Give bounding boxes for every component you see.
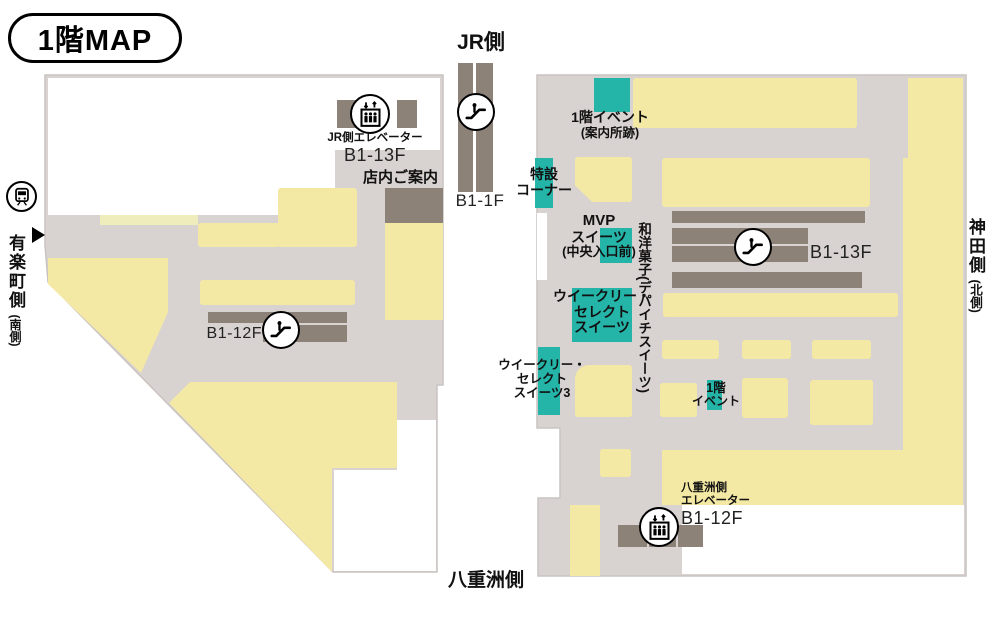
weekly-line1: ウイークリー・	[552, 289, 652, 305]
weekly-select-3-label: ウイークリー・ セレクト スイーツ3	[492, 358, 592, 400]
jr-elevator-floors: B1-13F	[325, 145, 425, 165]
event-1f-top-line1: 1階イベント	[550, 110, 670, 126]
jr-elevator-label: JR側エレベーター	[325, 132, 425, 145]
weekly3-line2: セレクト	[492, 372, 592, 386]
sales-area-block	[570, 505, 600, 576]
weekly-line3: スイーツ	[552, 320, 652, 336]
escalator-icon	[734, 228, 772, 266]
side-label-yurakucho: 有楽町側 (南側)	[6, 234, 25, 394]
sales-area-block	[385, 223, 443, 320]
sales-area-block	[663, 293, 898, 317]
event-spot-1f-top	[594, 78, 630, 112]
sales-area-block	[200, 280, 355, 305]
special-corner-line1: 特設	[504, 167, 584, 183]
escalator-icon	[457, 93, 495, 131]
elevator-icon	[639, 507, 679, 547]
escalator-floors-label: B1-12F	[182, 325, 262, 343]
event-1f-small-label: 1階 イベント	[686, 381, 746, 408]
right-escalator-floors: B1-13F	[810, 242, 872, 262]
sales-area-block	[278, 188, 357, 247]
escalator-icon	[262, 311, 300, 349]
kanda-main: 神田側	[966, 218, 985, 275]
escalator-bank	[672, 272, 862, 288]
yurakucho-main: 有楽町側	[6, 234, 25, 310]
yaesu-elevator-line1: 八重洲側	[681, 482, 750, 495]
elevator-shaft	[397, 100, 417, 128]
map-title-badge: 1階MAP	[8, 13, 182, 63]
floor-map-1f: B1-12F JR側エレベーター B1-13F 店内ご案内 B1-1F JR側 …	[0, 0, 1000, 630]
escalator-bank	[672, 211, 865, 223]
weekly3-line1: ウイークリー・	[492, 358, 592, 372]
kanda-sub: (北側)	[968, 279, 982, 312]
yaesu-elevator-label: 八重洲側 エレベーター B1-12F	[681, 482, 750, 528]
special-corner-label: 特設 コーナー	[504, 167, 584, 198]
weekly-line2: セレクト	[552, 305, 652, 321]
yaesu-elevator-line2: エレベーター	[681, 495, 750, 508]
event-1f-small-line1: 1階	[686, 381, 746, 395]
side-label-jr: JR側	[426, 31, 536, 55]
sales-area-strip	[100, 215, 198, 225]
sales-area-block	[198, 223, 280, 247]
event-1f-small-line2: イベント	[686, 395, 746, 408]
side-label-kanda: 神田側 (北側)	[966, 218, 985, 358]
mvp-line1: MVP	[549, 213, 649, 230]
sales-area-block	[742, 340, 791, 359]
entrance-arrow	[32, 227, 45, 243]
right-building-white-aisle	[537, 213, 547, 280]
yurakucho-sub: (南側)	[8, 314, 22, 346]
sales-area-block	[600, 449, 631, 477]
mvp-line2: スイーツ	[549, 230, 649, 246]
sales-area-block	[812, 340, 871, 359]
sales-area-block	[810, 380, 873, 425]
special-corner-line2: コーナー	[504, 183, 584, 199]
elevator-shaft	[678, 525, 703, 547]
mvp-line3: (中央入口前)	[549, 245, 649, 260]
event-1f-top-label: 1階イベント (案内所跡)	[550, 110, 670, 140]
side-label-yaesu: 八重洲側	[448, 570, 524, 591]
weekly-select-label: ウイークリー・ セレクト スイーツ	[552, 289, 652, 336]
elevator-icon	[350, 94, 390, 134]
sales-area-block	[662, 340, 719, 359]
yaesu-elevator-floors: B1-12F	[681, 508, 750, 528]
sales-area-block	[662, 158, 870, 207]
weekly3-line3: スイーツ3	[492, 386, 592, 400]
store-info-label: 店内ご案内	[363, 170, 438, 187]
train-icon	[6, 181, 37, 212]
sales-area-block	[742, 378, 788, 418]
event-1f-top-line2: (案内所跡)	[550, 126, 670, 140]
mvp-sweets-label: MVP スイーツ (中央入口前)	[549, 213, 649, 260]
